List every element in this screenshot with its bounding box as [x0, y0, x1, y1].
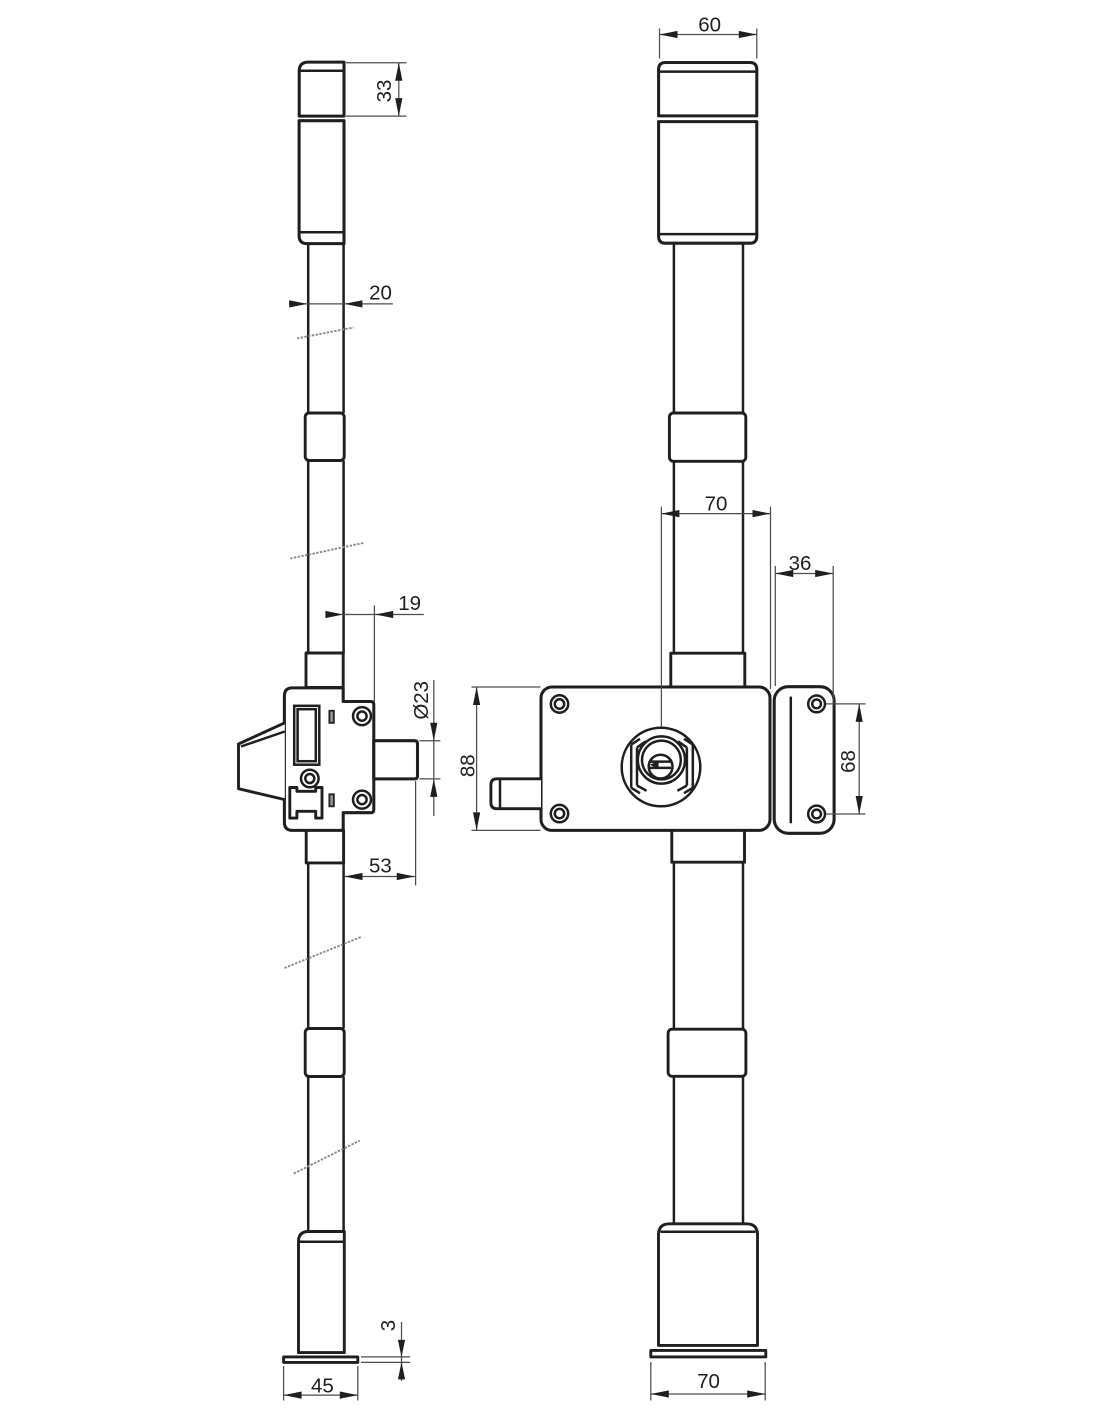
svg-text:33: 33: [373, 80, 396, 103]
svg-text:45: 45: [311, 1375, 334, 1398]
svg-text:Ø23: Ø23: [410, 681, 433, 720]
svg-text:20: 20: [369, 282, 392, 305]
svg-text:88: 88: [457, 754, 480, 777]
svg-text:53: 53: [369, 855, 392, 878]
svg-text:68: 68: [837, 750, 860, 773]
svg-text:60: 60: [698, 14, 721, 37]
svg-text:19: 19: [398, 592, 421, 615]
svg-text:70: 70: [697, 1370, 720, 1393]
svg-text:36: 36: [789, 552, 812, 575]
svg-text:70: 70: [705, 493, 728, 516]
svg-text:3: 3: [377, 1320, 400, 1331]
